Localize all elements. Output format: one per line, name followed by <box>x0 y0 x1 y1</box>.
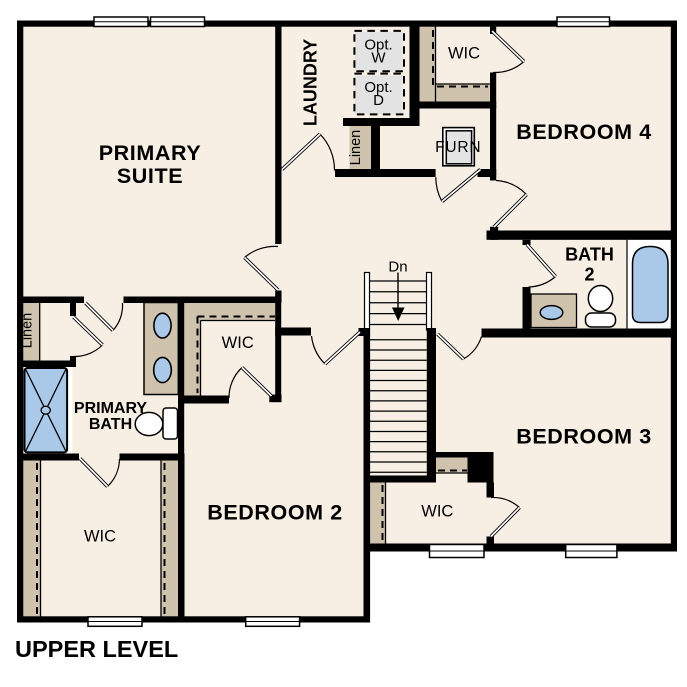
svg-text:D: D <box>373 92 384 109</box>
svg-text:W: W <box>371 49 386 66</box>
svg-text:WIC: WIC <box>448 45 480 63</box>
svg-text:BATH: BATH <box>89 416 132 433</box>
svg-text:UPPER LEVEL: UPPER LEVEL <box>15 636 178 662</box>
svg-text:BEDROOM 3: BEDROOM 3 <box>516 425 652 449</box>
svg-text:WIC: WIC <box>222 334 254 352</box>
svg-text:BEDROOM 4: BEDROOM 4 <box>516 120 652 144</box>
svg-text:FURN: FURN <box>435 139 481 156</box>
svg-text:LAUNDRY: LAUNDRY <box>301 39 321 126</box>
svg-text:WIC: WIC <box>84 528 116 546</box>
svg-text:BEDROOM 2: BEDROOM 2 <box>207 501 343 525</box>
svg-text:Linen: Linen <box>20 313 36 348</box>
svg-text:PRIMARY: PRIMARY <box>99 141 202 165</box>
svg-text:Dn: Dn <box>388 259 407 276</box>
svg-text:Linen: Linen <box>348 130 364 165</box>
svg-text:BATH: BATH <box>565 245 614 265</box>
svg-text:2: 2 <box>584 265 594 285</box>
svg-text:PRIMARY: PRIMARY <box>74 400 148 417</box>
svg-text:SUITE: SUITE <box>117 164 183 188</box>
svg-text:WIC: WIC <box>421 503 453 521</box>
